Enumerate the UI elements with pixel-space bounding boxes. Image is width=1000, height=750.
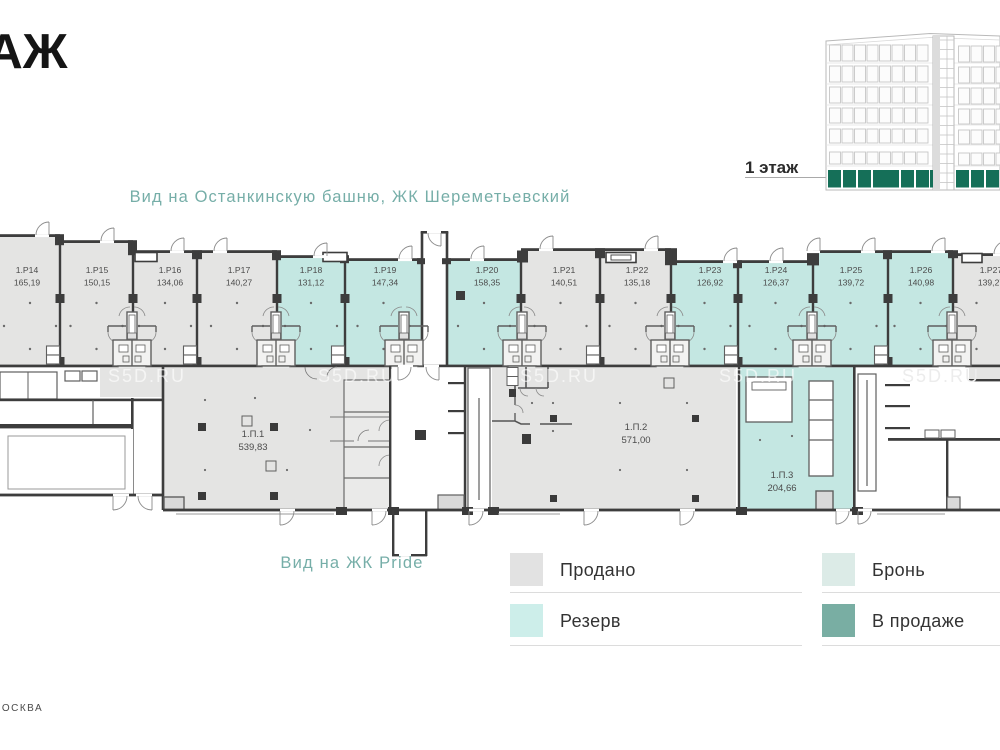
svg-text:131,12: 131,12 [298,278,325,288]
svg-text:165,19: 165,19 [14,278,41,288]
svg-text:1.Р17: 1.Р17 [228,265,251,275]
svg-text:150,15: 150,15 [84,278,111,288]
svg-text:140,51: 140,51 [551,278,578,288]
svg-text:1.Р22: 1.Р22 [626,265,649,275]
svg-text:147,34: 147,34 [372,278,399,288]
svg-text:1.Р21: 1.Р21 [553,265,576,275]
svg-text:539,83: 539,83 [238,442,267,453]
svg-text:1.Р18: 1.Р18 [300,265,323,275]
svg-text:204,66: 204,66 [767,483,796,494]
svg-text:1.Р24: 1.Р24 [765,265,788,275]
svg-text:1.Р14: 1.Р14 [16,265,39,275]
svg-text:571,00: 571,00 [621,435,650,446]
svg-text:1.Р15: 1.Р15 [86,265,109,275]
svg-text:S5D.RU: S5D.RU [719,366,797,386]
svg-text:1.Р20: 1.Р20 [476,265,499,275]
svg-text:1.Р26: 1.Р26 [910,265,933,275]
svg-text:1.Р23: 1.Р23 [699,265,722,275]
svg-text:1.П.2: 1.П.2 [625,422,648,433]
svg-text:S5D.RU: S5D.RU [318,366,396,386]
svg-text:1.П.3: 1.П.3 [771,470,794,481]
svg-text:158,35: 158,35 [474,278,501,288]
svg-text:1.П.1: 1.П.1 [242,429,265,440]
svg-text:126,37: 126,37 [763,278,790,288]
svg-text:140,27: 140,27 [226,278,253,288]
svg-text:S5D.RU: S5D.RU [520,366,598,386]
svg-text:S5D.RU: S5D.RU [108,366,186,386]
svg-text:135,18: 135,18 [624,278,651,288]
svg-text:126,92: 126,92 [697,278,724,288]
svg-text:139,27: 139,27 [978,278,1000,288]
svg-text:1.Р19: 1.Р19 [374,265,397,275]
svg-text:140,98: 140,98 [908,278,935,288]
svg-text:134,06: 134,06 [157,278,184,288]
svg-text:1.Р27: 1.Р27 [980,265,1000,275]
svg-text:139,72: 139,72 [838,278,865,288]
svg-text:1.Р25: 1.Р25 [840,265,863,275]
svg-text:S5D.RU: S5D.RU [902,366,980,386]
svg-text:1.Р16: 1.Р16 [159,265,182,275]
